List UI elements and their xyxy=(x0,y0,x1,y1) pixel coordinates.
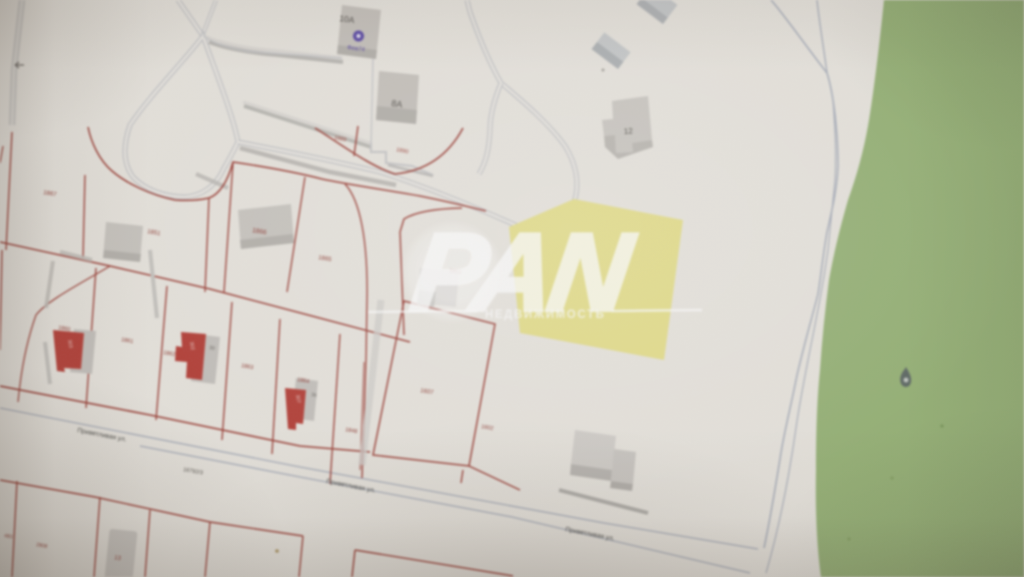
svg-text:10A: 10A xyxy=(339,13,356,25)
svg-text:12: 12 xyxy=(624,126,634,136)
svg-text:8A: 8A xyxy=(391,98,403,109)
svg-text:НЕДВИЖИМОСТЬ: НЕДВИЖИМОСТЬ xyxy=(485,309,605,321)
